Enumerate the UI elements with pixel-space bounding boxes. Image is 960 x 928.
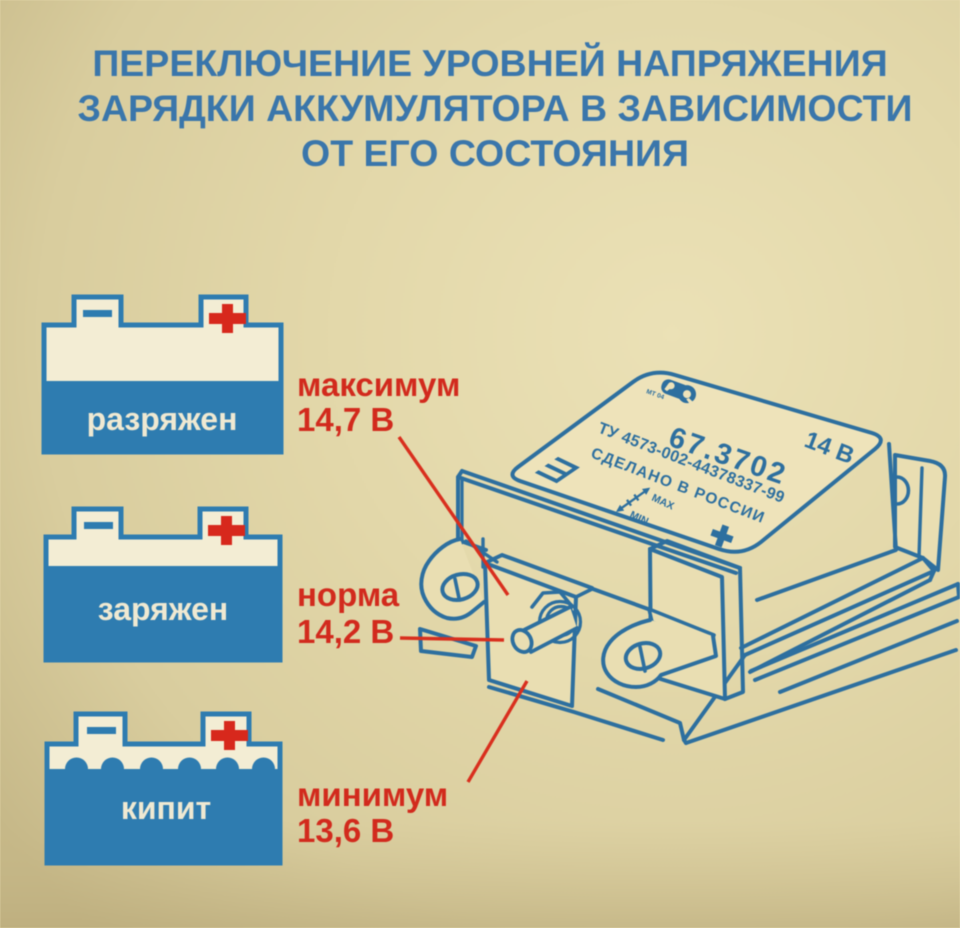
svg-text:13,6 В: 13,6 В [297, 812, 394, 849]
svg-text:ПЕРЕКЛЮЧЕНИЕ УРОВНЕЙ НАПРЯЖЕНИ: ПЕРЕКЛЮЧЕНИЕ УРОВНЕЙ НАПРЯЖЕНИЯ [92, 42, 887, 84]
svg-text:максимум: максимум [297, 366, 460, 403]
svg-text:норма: норма [297, 576, 400, 613]
svg-text:ОТ ЕГО СОСТОЯНИЯ: ОТ ЕГО СОСТОЯНИЯ [301, 132, 689, 174]
svg-text:кипит: кипит [121, 790, 211, 826]
svg-text:заряжен: заряжен [98, 591, 228, 627]
svg-text:14,2 В: 14,2 В [297, 613, 394, 650]
svg-text:минимум: минимум [297, 776, 448, 813]
svg-text:разряжен: разряжен [87, 401, 238, 437]
svg-text:ЗАРЯДКИ АККУМУЛЯТОРА В ЗАВИСИМ: ЗАРЯДКИ АККУМУЛЯТОРА В ЗАВИСИМОСТИ [77, 87, 912, 129]
svg-text:14,7 В: 14,7 В [297, 401, 394, 438]
